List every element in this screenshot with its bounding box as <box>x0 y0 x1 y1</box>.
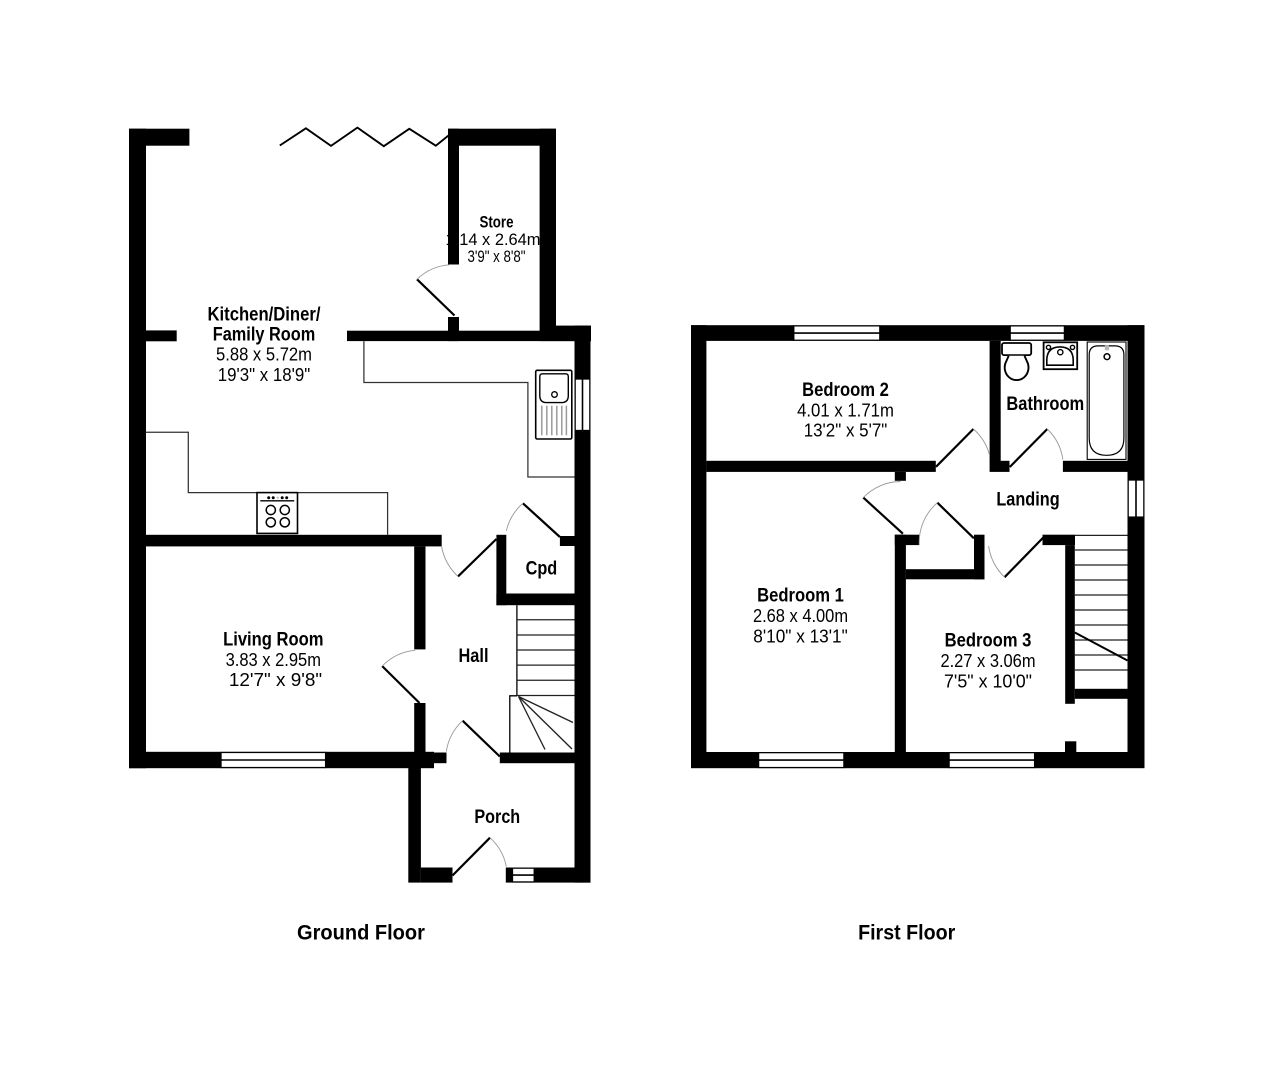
svg-text:Bathroom: Bathroom <box>1006 394 1084 415</box>
svg-text:Bedroom 1: Bedroom 1 <box>757 586 844 607</box>
svg-text:Family Room: Family Room <box>213 325 316 346</box>
svg-text:2.27 x 3.06m: 2.27 x 3.06m <box>940 651 1035 671</box>
svg-text:Living Room: Living Room <box>223 629 323 650</box>
svg-text:Bedroom 3: Bedroom 3 <box>945 631 1032 652</box>
svg-text:Kitchen/Diner/: Kitchen/Diner/ <box>208 304 322 325</box>
svg-text:3'9" x 8'8": 3'9" x 8'8" <box>468 247 526 266</box>
svg-text:Ground Floor: Ground Floor <box>297 922 425 945</box>
svg-text:Hall: Hall <box>459 646 489 667</box>
svg-text:3.83 x 2.95m: 3.83 x 2.95m <box>226 650 321 670</box>
svg-text:2.68 x 4.00m: 2.68 x 4.00m <box>753 606 848 626</box>
svg-text:First Floor: First Floor <box>858 922 955 945</box>
svg-text:7'5" x 10'0": 7'5" x 10'0" <box>944 671 1032 691</box>
svg-text:Cpd: Cpd <box>526 559 558 580</box>
svg-text:13'2" x 5'7": 13'2" x 5'7" <box>804 421 888 441</box>
svg-text:8'10" x 13'1": 8'10" x 13'1" <box>753 626 848 646</box>
svg-text:5.88 x 5.72m: 5.88 x 5.72m <box>216 345 312 365</box>
svg-text:Porch: Porch <box>474 807 520 828</box>
svg-text:Store: Store <box>480 213 514 231</box>
svg-text:19'3" x 18'9": 19'3" x 18'9" <box>218 365 311 385</box>
svg-text:12'7" x 9'8": 12'7" x 9'8" <box>229 670 322 690</box>
svg-text:Bedroom 2: Bedroom 2 <box>802 380 889 401</box>
svg-text:4.01 x 1.71m: 4.01 x 1.71m <box>797 400 894 420</box>
svg-text:Landing: Landing <box>996 489 1059 510</box>
